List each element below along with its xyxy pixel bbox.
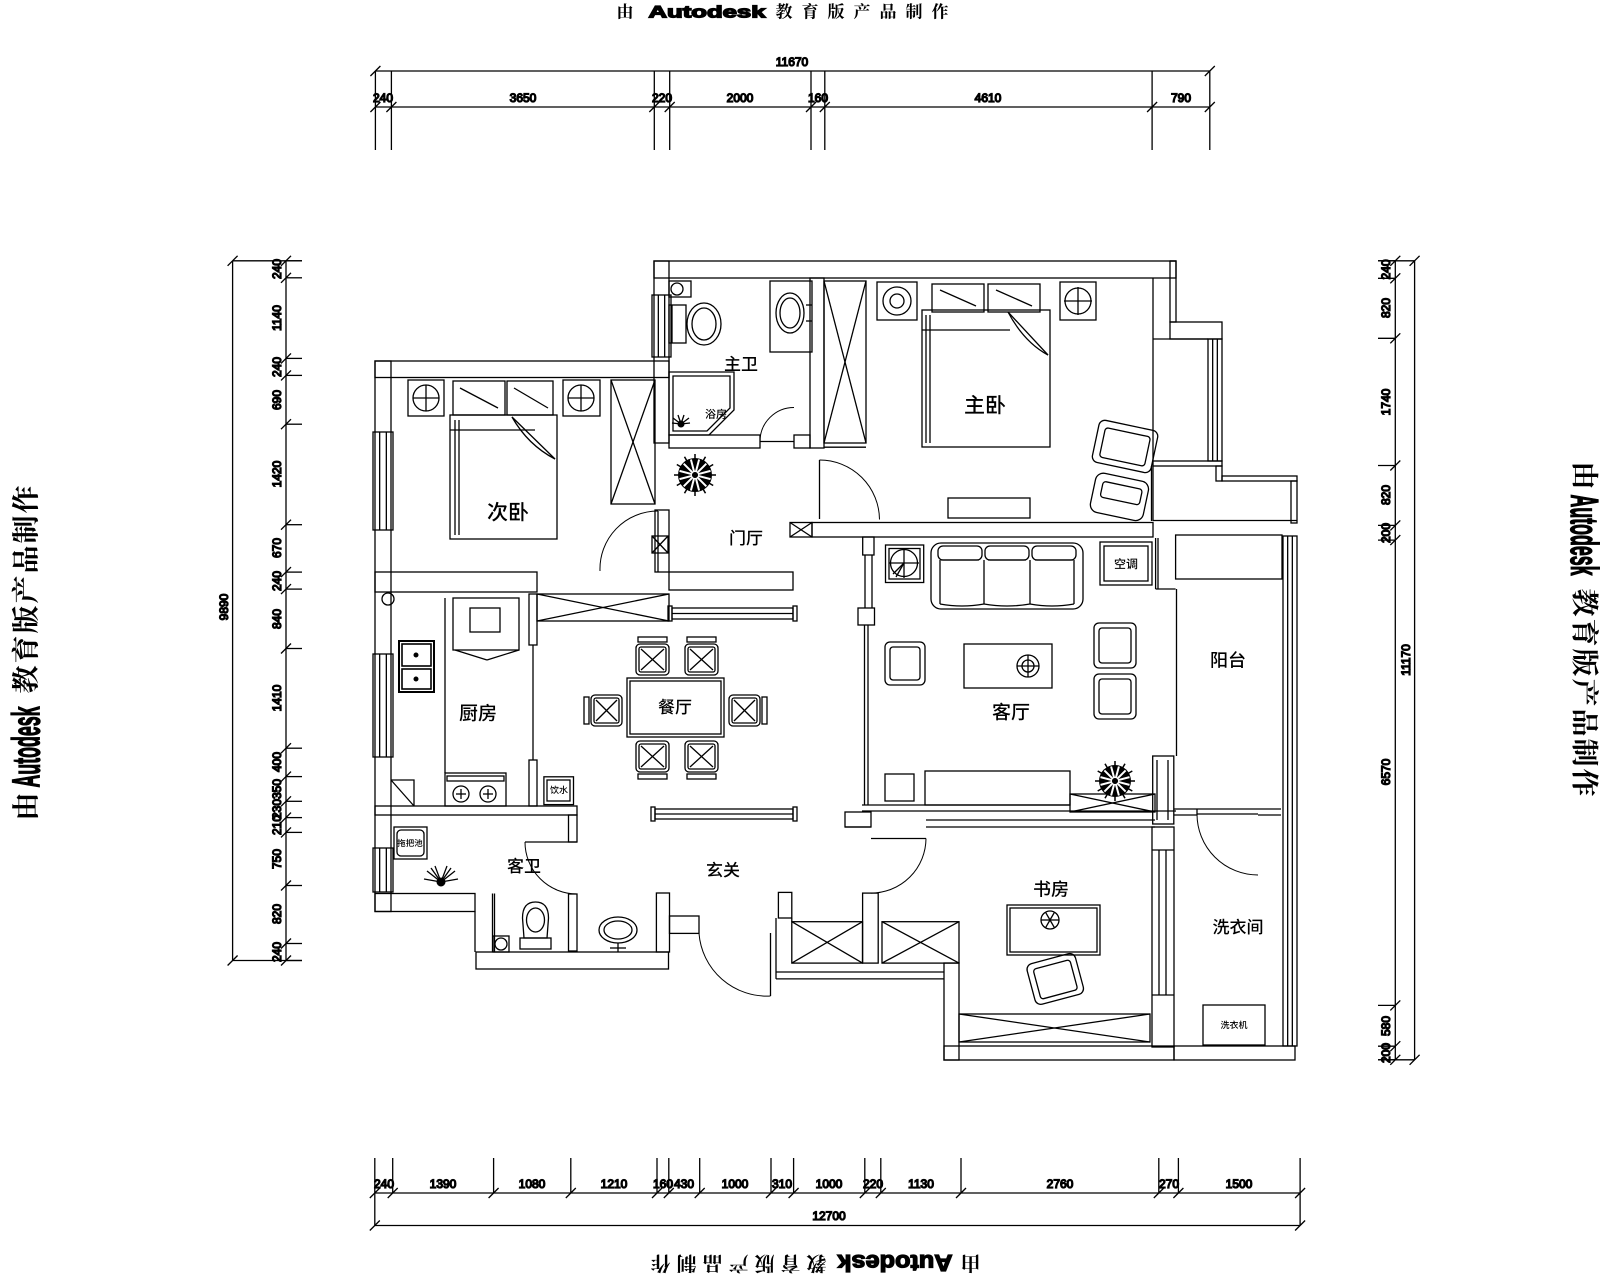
svg-text:840: 840 (270, 609, 284, 629)
svg-text:240: 240 (270, 357, 284, 377)
svg-text:1500: 1500 (1226, 1177, 1253, 1191)
svg-text:11170: 11170 (1399, 644, 1413, 676)
svg-text:240: 240 (270, 571, 284, 591)
svg-text:580: 580 (1379, 1016, 1393, 1036)
svg-text:Autodesk: Autodesk (6, 706, 49, 787)
svg-text:750: 750 (270, 849, 284, 869)
svg-text:2000: 2000 (727, 91, 754, 105)
svg-text:240: 240 (270, 259, 284, 279)
svg-text:430: 430 (674, 1177, 694, 1191)
svg-text:9890: 9890 (217, 593, 231, 620)
svg-text:240: 240 (374, 1177, 394, 1191)
svg-text:670: 670 (270, 538, 284, 558)
svg-text:690: 690 (270, 390, 284, 410)
svg-text:12700: 12700 (812, 1209, 846, 1223)
svg-text:820: 820 (1379, 298, 1393, 318)
svg-text:160: 160 (653, 1177, 673, 1191)
svg-text:1080: 1080 (519, 1177, 546, 1191)
svg-text:1390: 1390 (430, 1177, 457, 1191)
svg-text:Autodesk: Autodesk (837, 1250, 952, 1276)
svg-text:1130: 1130 (908, 1177, 934, 1191)
svg-text:6570: 6570 (1379, 758, 1393, 785)
svg-text:Autodesk: Autodesk (649, 3, 767, 22)
svg-text:240: 240 (1379, 259, 1393, 279)
svg-text:350: 350 (270, 779, 284, 799)
svg-text:1210: 1210 (601, 1177, 628, 1191)
svg-text:1420: 1420 (270, 460, 284, 487)
svg-text:1410: 1410 (270, 684, 284, 711)
svg-text:400: 400 (270, 752, 284, 772)
svg-text:1740: 1740 (1379, 388, 1393, 415)
svg-text:1140: 1140 (270, 305, 284, 331)
svg-text:210: 210 (270, 815, 284, 835)
svg-text:790: 790 (1171, 91, 1191, 105)
svg-text:1000: 1000 (816, 1177, 843, 1191)
svg-text:240: 240 (270, 942, 284, 962)
svg-text:820: 820 (270, 904, 284, 924)
svg-text:1000: 1000 (722, 1177, 749, 1191)
svg-text:4610: 4610 (975, 91, 1002, 105)
svg-text:820: 820 (1379, 485, 1393, 505)
svg-text:11670: 11670 (776, 55, 809, 69)
svg-text:Autodesk: Autodesk (1562, 495, 1600, 576)
svg-text:3650: 3650 (510, 91, 537, 105)
svg-text:2760: 2760 (1047, 1177, 1074, 1191)
